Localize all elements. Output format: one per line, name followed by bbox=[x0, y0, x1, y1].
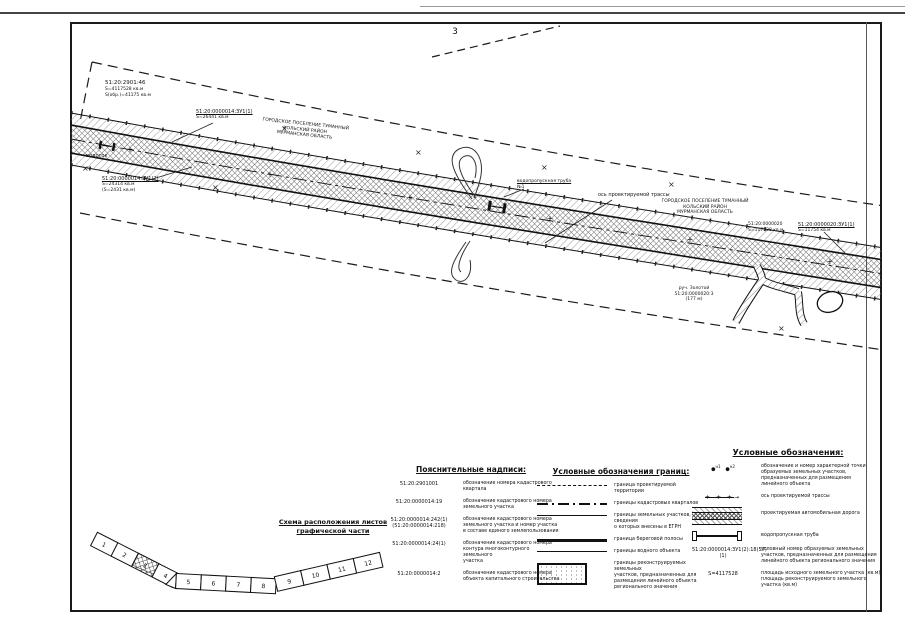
grid-cross: × bbox=[415, 148, 422, 157]
parcel-box-sample bbox=[537, 561, 607, 585]
grid-cross: × bbox=[82, 164, 89, 173]
scheme-segment-b: 5 6 7 8 bbox=[166, 573, 277, 594]
legend-row: границы земельных участков, сведения о к… bbox=[537, 513, 705, 531]
cadnum-sample: 51:20:0000014:ЗУ1(2):18(57)(1) bbox=[692, 547, 754, 559]
svg-text:8: 8 bbox=[261, 583, 265, 590]
legend-row: 51:20:2901001 обозначение номера кадастр… bbox=[382, 481, 560, 493]
parcel-callout: 51:20:0000020:ЗУ1(1) S=11754 кв.м bbox=[798, 222, 878, 234]
waterflow-label: водоток bbox=[86, 153, 108, 159]
parcel-callout: 51:20:0000014:ЗУ1(2) S=24314 кв.м (S=243… bbox=[102, 176, 182, 194]
sheet-scheme: 1 2 3 4 5 6 7 8 9 bbox=[90, 533, 390, 608]
legend-row: границы водного объекта bbox=[537, 549, 705, 555]
svg-text:+: + bbox=[687, 235, 694, 244]
settlement-label-right: ГОРОДСКОЕ ПОСЕЛЕНИЕ ТУМАННЫЙ КОЛЬСКИЙ РА… bbox=[640, 199, 770, 216]
svg-text:+: + bbox=[267, 170, 274, 179]
culvert-callout: водопропускная труба №1 bbox=[517, 179, 587, 190]
grid-cross: × bbox=[668, 180, 675, 189]
char-point-sample: ●н1 ●н2 bbox=[692, 464, 754, 473]
legend-borders: Условные обозначения границ: граница про… bbox=[537, 467, 705, 597]
scheme-segment-c: 9 10 11 12 bbox=[274, 552, 383, 591]
legend-row: S=4117528 площадь исходного земельного у… bbox=[692, 571, 884, 589]
legend-row: 51:20:0000014:24(1) обозначение кадастро… bbox=[382, 541, 560, 565]
legend-notes-title: Пояснительные надписи: bbox=[382, 465, 560, 474]
solid-line-sample bbox=[537, 549, 607, 552]
road-band-sample bbox=[692, 507, 754, 525]
scheme-segment-a: 1 2 3 4 bbox=[91, 532, 180, 587]
legend-row: 51:20:0000014:242(1) (51:20:0000014:218)… bbox=[382, 517, 560, 535]
legend-row: ●н1 ●н2 обозначение и номер характерной … bbox=[692, 464, 884, 488]
legend-row: 51:20:0000014:2 обозначение кадастрового… bbox=[382, 571, 560, 583]
grid-cross: × bbox=[212, 183, 219, 192]
svg-text:+: + bbox=[407, 193, 414, 202]
legend-symbols: Условные обозначения: ●н1 ●н2 обозначени… bbox=[692, 448, 884, 595]
legend-row: проектируемая автомобильная дорога bbox=[692, 507, 884, 525]
thin-line-sample bbox=[537, 513, 607, 516]
drawing-sheet: 3 bbox=[0, 0, 905, 640]
legend-row: граница береговой полосы bbox=[537, 537, 705, 543]
axis-callout: ось проектируемой трассы bbox=[598, 192, 670, 198]
legend-row: + + +→ ось проектируемой трассы bbox=[692, 494, 884, 501]
svg-text:+: + bbox=[127, 145, 134, 154]
legend-row: границы реконструируемых земельных участ… bbox=[537, 561, 705, 591]
dashed-line-sample bbox=[537, 483, 607, 486]
cadastral-quarter-label: 51:20:2901:46 S=4117528 кв.м S(обр.)=411… bbox=[105, 80, 195, 98]
svg-text:+: + bbox=[547, 214, 554, 223]
grid-cross: × bbox=[541, 163, 548, 172]
svg-text:7: 7 bbox=[236, 582, 240, 589]
area-sample: S=4117528 bbox=[692, 571, 754, 577]
svg-text:5: 5 bbox=[186, 579, 190, 586]
culvert-sample bbox=[692, 531, 754, 541]
legend-row: границы кадастровых кварталов bbox=[537, 501, 705, 507]
thick-line-sample bbox=[537, 537, 607, 542]
legend-row: водопропускная труба bbox=[692, 531, 884, 541]
svg-text:+: + bbox=[827, 257, 834, 266]
legend-row: 51:20:0000014:ЗУ1(2):18(57)(1) условный … bbox=[692, 547, 884, 565]
parcel-callout: 51:20:0000014:ЗУ1(1) S=26441 кв.м bbox=[196, 109, 276, 121]
river-label: руч. Золотой 51:20:0000020:3 (177 м) bbox=[664, 286, 724, 303]
legend-row: граница проектируемой территории bbox=[537, 483, 705, 495]
grid-cross: × bbox=[778, 324, 785, 333]
legend-notes: Пояснительные надписи: 51:20:2901001 обо… bbox=[382, 465, 560, 589]
legend-row: 51:20:0000014:19 обозначение кадастровог… bbox=[382, 499, 560, 511]
legend-symbols-title: Условные обозначения: bbox=[692, 448, 884, 457]
dashdot-line-sample bbox=[537, 501, 607, 505]
svg-text:6: 6 bbox=[211, 580, 215, 587]
axis-line-sample: + + +→ bbox=[692, 494, 754, 501]
legend-borders-title: Условные обозначения границ: bbox=[537, 467, 705, 476]
